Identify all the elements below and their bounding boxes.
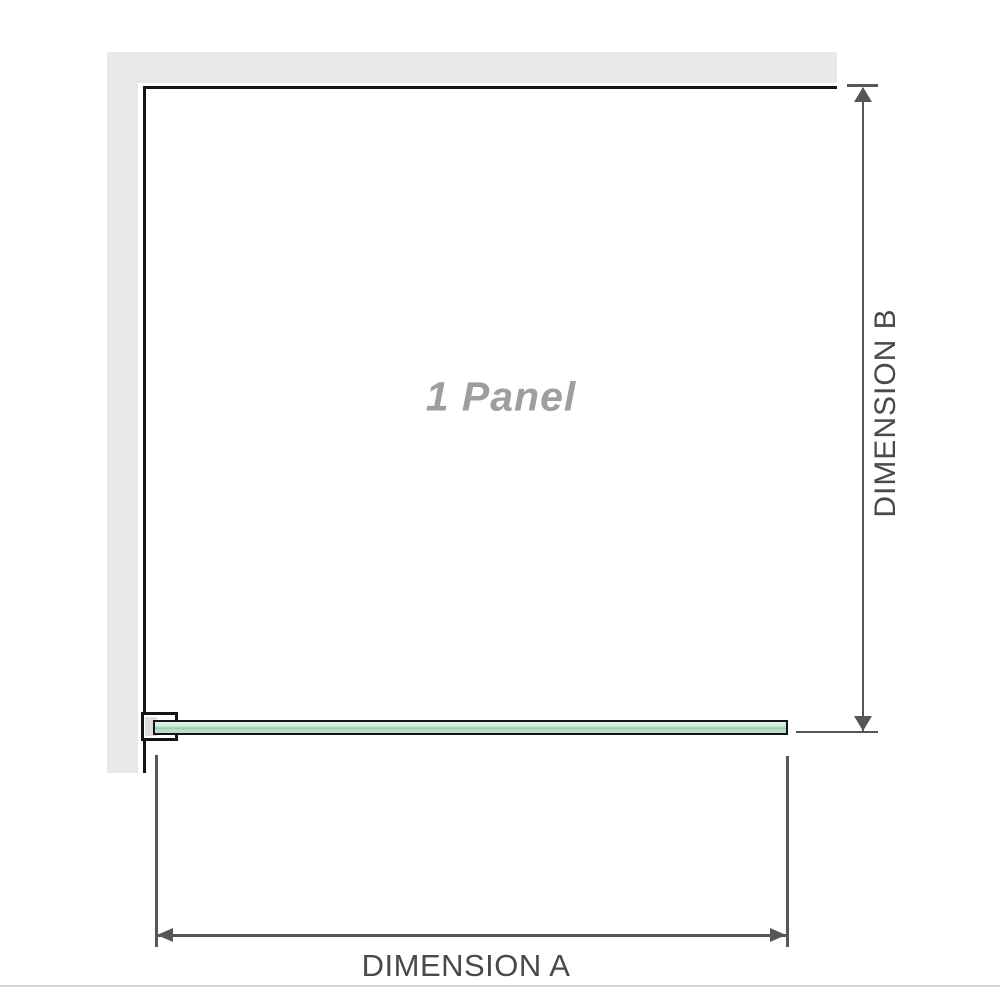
dimension-b-line [862,88,865,732]
dimension-b-label: DIMENSION B [869,308,903,517]
left-wall-edge-line [143,86,146,773]
footer-divider-line [0,985,1000,987]
left-wall-bar [107,52,138,773]
dimension-a-extension-right [786,756,789,947]
dimension-a-arrowhead-right-icon [770,928,786,942]
panel-count-label: 1 Panel [426,374,577,421]
dimension-a-line [158,934,786,937]
dimension-a-label: DIMENSION A [362,948,571,984]
dimension-a-arrowhead-left-icon [157,928,173,942]
dimension-b-arrowhead-up-icon [854,87,872,102]
dimension-diagram: 1 Panel DIMENSION B DIMENSION A [0,0,1000,1000]
top-wall-bar [107,52,837,83]
dimension-a-extension-left [155,755,158,947]
dimension-b-arrowhead-down-icon [854,716,872,731]
glass-panel [153,720,788,735]
top-wall-edge-line [143,86,837,89]
